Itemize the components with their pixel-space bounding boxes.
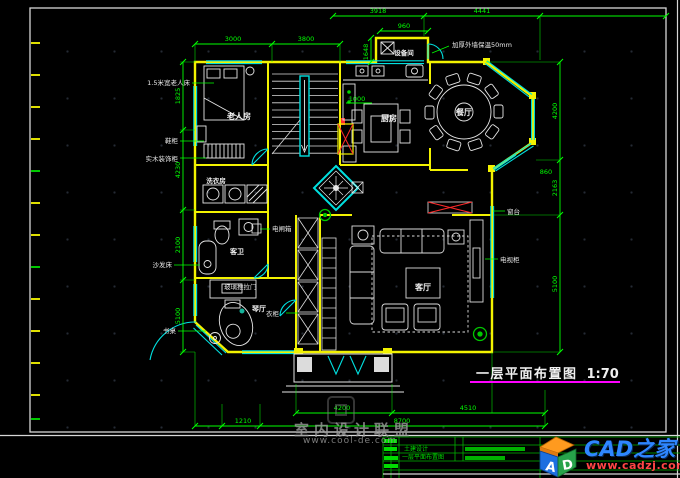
watermark-url: www.cool-de.com — [303, 436, 397, 446]
annotation-label: 窗台 — [507, 207, 520, 216]
room-label-guest-bath: 客卫 — [229, 247, 244, 256]
garden-door — [494, 155, 516, 170]
breaker-box — [252, 224, 261, 233]
room-label-dining: 餐厅 — [455, 107, 472, 117]
bath-door — [254, 264, 268, 278]
equipment-room-content — [381, 42, 394, 54]
room-label-laundry: 洗衣房 — [206, 176, 226, 185]
annotation-label: 加厚外墙保温50mm — [452, 40, 512, 49]
drawing-title-text: 一层平面布置图 — [476, 367, 578, 382]
titleblock-row2: 一层平面布置图 — [402, 453, 444, 461]
annotation-label: 衣柜 — [266, 309, 280, 318]
laundry-fixtures — [203, 185, 267, 203]
tv-cabinet — [470, 220, 483, 302]
foyer-medallion — [314, 166, 363, 210]
annotation-label: 1.5米宽老人床 — [147, 78, 190, 87]
wardrobe-strip — [322, 238, 336, 350]
sofa-3seat — [380, 229, 444, 253]
entry-door-leaf-left — [328, 356, 344, 374]
sheet-margin-ticks — [31, 42, 40, 420]
shower-tray — [199, 241, 216, 274]
corner-table — [352, 226, 374, 244]
drawing-scale: 1:70 — [587, 367, 619, 382]
dresser — [197, 126, 206, 142]
dim-label: 5100 — [551, 276, 559, 293]
staircase — [272, 74, 345, 156]
dim-label: 3800 — [298, 35, 315, 43]
dim-label: 3000 — [225, 35, 242, 43]
dim-label: 4200 — [551, 103, 559, 120]
titleblock-row1: 土建设计 — [404, 445, 428, 453]
dim-label: 5100 — [174, 308, 182, 325]
side-table — [448, 230, 464, 244]
title-underline — [470, 381, 620, 383]
doors — [150, 44, 516, 374]
corridor-cabinets — [298, 218, 336, 350]
dim-label: 4230 — [174, 162, 182, 179]
annotation-label: 书桌 — [163, 326, 177, 335]
leader-annotations: 1.5米宽老人床 鞋柜 实木装饰柜 沙发床 书桌 电闸箱 衣柜 窗台 电视柜 加… — [146, 40, 521, 335]
room-label-kitchen: 厨房 — [381, 113, 397, 123]
annotation-label: 实木装饰柜 — [146, 154, 179, 163]
elder-room-door — [252, 149, 268, 165]
entry-porch — [282, 354, 404, 392]
nightstand — [246, 67, 254, 75]
room-label-living: 客厅 — [414, 282, 431, 292]
dim-label: 3918 — [370, 7, 387, 15]
kitchen-table — [364, 104, 398, 152]
dim-label: 960 — [398, 22, 410, 30]
annotation-label: 沙发床 — [153, 260, 173, 269]
room-label-elder: 老人房 — [226, 111, 251, 121]
dim-label: 860 — [540, 168, 552, 176]
sink — [406, 65, 423, 77]
dim-label: 2163 — [551, 180, 559, 197]
annotation-label: 电视柜 — [500, 255, 520, 264]
piano-room-door — [280, 300, 296, 316]
room-label-equipment: 设备间 — [394, 48, 414, 57]
annotation-label: 鞋柜 — [165, 136, 179, 145]
dim-label: 1648 — [362, 44, 370, 61]
red-accents — [338, 124, 472, 213]
cad-logo-cube-icon: A D — [538, 433, 582, 478]
entry-door-leaf-right — [350, 356, 366, 374]
walls-outer — [195, 38, 533, 352]
dim-label: 1000 — [349, 95, 366, 103]
sofa-side — [350, 246, 374, 324]
dim-label: 1210 — [235, 417, 252, 425]
drawing-title: 一层平面布置图1:70 — [476, 363, 619, 382]
cad-canvas: 3918 4441 3000 3800 960 1648 1000 1825 4… — [0, 0, 680, 478]
dim-label: 1825 — [174, 88, 182, 105]
annotation-label: 玻璃推拉门 — [224, 282, 257, 291]
guest-bath-fixtures — [199, 219, 258, 274]
room-label-piano: 琴厅 — [251, 304, 266, 313]
dim-label: 4510 — [460, 404, 477, 412]
annotation-label: 电闸箱 — [272, 224, 292, 233]
living-room-furniture — [350, 220, 483, 332]
cadzj-logo: A D CAD之家 www.cadzj.com — [538, 433, 680, 478]
dim-label: 2100 — [174, 237, 182, 254]
cadzj-site-url: www.cadzj.com — [586, 459, 680, 472]
dim-label: 4441 — [474, 7, 491, 15]
